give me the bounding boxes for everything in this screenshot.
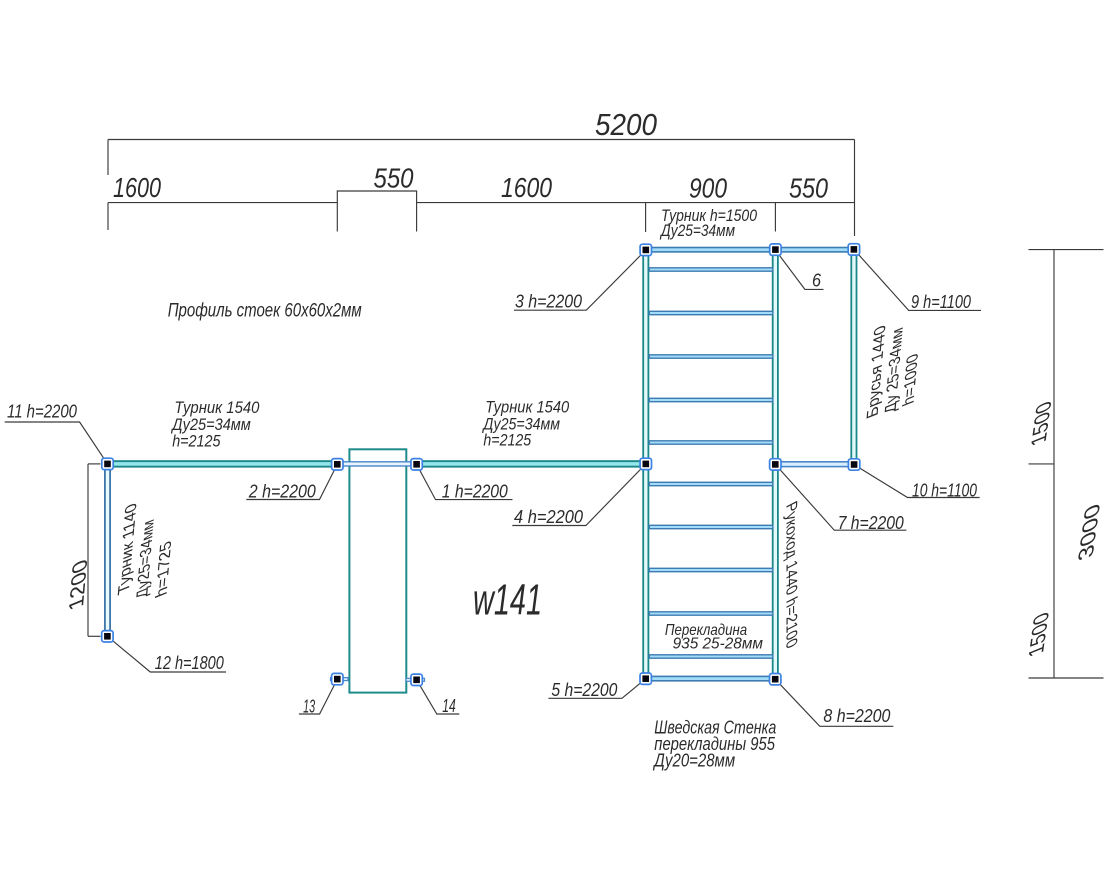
svg-text:Профиль стоек 60х60х2мм: Профиль стоек 60х60х2мм bbox=[168, 301, 362, 322]
svg-text:935 25-28мм: 935 25-28мм bbox=[673, 636, 763, 653]
svg-text:Ду25=34мм: Ду25=34мм bbox=[170, 416, 250, 434]
svg-text:9 h=1100: 9 h=1100 bbox=[911, 292, 971, 312]
svg-text:Ду20=28мм: Ду20=28мм bbox=[653, 750, 736, 771]
svg-text:12 h=1800: 12 h=1800 bbox=[155, 653, 224, 673]
svg-text:13: 13 bbox=[303, 697, 315, 717]
svg-text:1600: 1600 bbox=[501, 172, 552, 203]
svg-text:7 h=2200: 7 h=2200 bbox=[838, 513, 904, 533]
svg-text:11 h=2200: 11 h=2200 bbox=[7, 402, 77, 422]
svg-text:14: 14 bbox=[442, 696, 456, 716]
svg-text:6: 6 bbox=[812, 271, 822, 291]
svg-text:3 h=2200: 3 h=2200 bbox=[515, 292, 582, 312]
svg-text:Турник 1540: Турник 1540 bbox=[485, 399, 570, 417]
svg-text:Рукоход 1440 h=2100: Рукоход 1440 h=2100 bbox=[783, 498, 800, 652]
svg-text:2 h=2200: 2 h=2200 bbox=[248, 482, 316, 502]
svg-text:w141: w141 bbox=[473, 576, 542, 625]
svg-text:8 h=2200: 8 h=2200 bbox=[823, 706, 890, 726]
svg-text:1 h=2200: 1 h=2200 bbox=[442, 482, 508, 502]
svg-text:h=2125: h=2125 bbox=[172, 433, 221, 451]
svg-text:1600: 1600 bbox=[113, 172, 161, 203]
svg-text:4 h=2200: 4 h=2200 bbox=[514, 507, 583, 527]
svg-text:Турник 1540: Турник 1540 bbox=[174, 399, 260, 417]
svg-text:h=2125: h=2125 bbox=[483, 432, 531, 450]
svg-text:550: 550 bbox=[789, 173, 828, 204]
svg-text:5 h=2200: 5 h=2200 bbox=[551, 680, 617, 700]
svg-text:10 h=1100: 10 h=1100 bbox=[912, 480, 977, 500]
svg-text:5200: 5200 bbox=[595, 107, 657, 142]
svg-text:900: 900 bbox=[689, 173, 727, 204]
svg-text:550: 550 bbox=[374, 163, 414, 194]
svg-text:Ду25=34мм: Ду25=34мм bbox=[659, 222, 735, 240]
